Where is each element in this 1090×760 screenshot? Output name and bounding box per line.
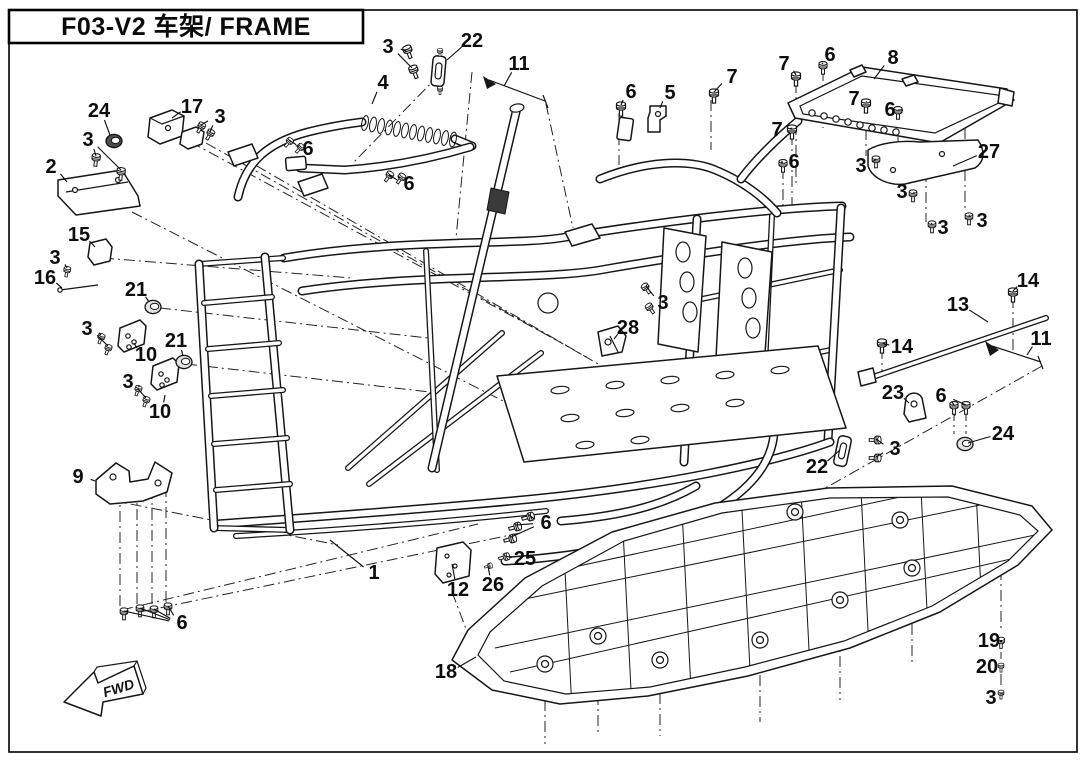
- callout-label: 10: [135, 344, 157, 366]
- callout-label: 19: [978, 630, 1000, 652]
- callout-label: 2: [45, 156, 56, 178]
- skid-plate: [452, 470, 1052, 710]
- callout-label: 7: [848, 88, 859, 110]
- callout-label: 3: [214, 106, 225, 128]
- callout-label: 28: [617, 317, 639, 339]
- callout-label: 3: [81, 318, 92, 340]
- diagram-title: F03-V2 车架/ FRAME: [61, 12, 311, 41]
- callout-label: 6: [625, 81, 636, 103]
- callout-label: 7: [778, 53, 789, 75]
- bolt-icon: [120, 608, 128, 620]
- part-23-bracket: [904, 393, 926, 422]
- callout-label: 6: [176, 612, 187, 634]
- bushing-icon: [106, 134, 122, 147]
- callout-label: 3: [855, 155, 866, 177]
- leader-line: [790, 128, 792, 129]
- part-2-plate: [58, 170, 140, 215]
- callout-label: 15: [68, 224, 90, 246]
- callout-label: 11: [1030, 328, 1051, 350]
- callout-label: 9: [72, 466, 83, 488]
- callout-label: 14: [891, 336, 914, 358]
- leader-line: [56, 283, 62, 288]
- leader-line: [822, 63, 823, 64]
- bolt-icon: [787, 125, 796, 139]
- rear-rack: [788, 65, 1014, 143]
- leader-line: [866, 101, 867, 102]
- leader-line: [91, 479, 95, 481]
- callout-label: 3: [49, 247, 60, 269]
- leader-line: [372, 92, 377, 104]
- bolt-icon: [508, 522, 522, 533]
- callout-label: 6: [935, 385, 946, 407]
- callout-label: 3: [985, 687, 996, 709]
- callout-label: 27: [978, 141, 1000, 163]
- part-16-rod: [60, 285, 98, 290]
- callout-label: 6: [302, 138, 313, 160]
- callout-label: 26: [482, 574, 504, 596]
- leader-line: [931, 223, 932, 224]
- bushing-icon: [176, 355, 192, 368]
- leader-line: [124, 611, 169, 621]
- title-box: F03-V2 车架/ FRAME: [9, 10, 363, 43]
- bushing-icon: [957, 437, 973, 450]
- leader-line: [104, 120, 110, 135]
- callout-label: 21: [165, 330, 187, 352]
- callout-label: 3: [976, 210, 987, 232]
- callout-label: 22: [806, 456, 828, 478]
- leader-line: [98, 147, 121, 170]
- diagram-page: FWD 241733215316213102131096132211466657…: [0, 0, 1090, 760]
- leader-line: [399, 177, 400, 178]
- callout-label: 3: [122, 371, 133, 393]
- bolt-icon: [133, 385, 143, 397]
- callout-label: 6: [824, 44, 835, 66]
- flex-section: [360, 115, 457, 147]
- callout-label: 3: [889, 438, 900, 460]
- callout-label: 25: [514, 548, 536, 570]
- callout-label: 13: [947, 294, 969, 316]
- callout-label: 3: [937, 217, 948, 239]
- callout-label: 6: [788, 151, 799, 173]
- leader-line: [138, 386, 140, 387]
- fwd-arrow: FWD: [64, 661, 146, 716]
- callout-label: 14: [1017, 270, 1040, 292]
- leader-line: [330, 540, 364, 567]
- bolt-icon: [950, 402, 958, 415]
- callout-label: 11: [508, 53, 529, 75]
- bolt-icon: [877, 339, 886, 353]
- callout-label: 24: [992, 423, 1015, 445]
- leader-line: [447, 47, 462, 60]
- bolt-icon: [869, 436, 881, 444]
- callout-label: 3: [896, 181, 907, 203]
- callout-label: 18: [435, 661, 457, 683]
- bolt-icon: [965, 213, 973, 225]
- callout-label: 3: [657, 292, 668, 314]
- frame-diagram: FWD 241733215316213102131096132211466657…: [0, 0, 1090, 760]
- part-12-bracket: [435, 542, 471, 583]
- part-5-bracket: [648, 106, 666, 132]
- callout-label: 6: [540, 512, 551, 534]
- callout-label: 8: [887, 47, 898, 69]
- callout-label: 4: [377, 72, 389, 94]
- callout-label: 12: [447, 579, 469, 601]
- bolt-icon: [998, 663, 1004, 672]
- bolt-icon: [928, 221, 936, 233]
- callout-label: 24: [88, 100, 111, 122]
- callout-label: 21: [125, 279, 147, 301]
- callout-label: 20: [976, 656, 998, 678]
- callout-label: 16: [34, 267, 56, 289]
- callout-label: 23: [882, 382, 904, 404]
- callout-label: 3: [382, 36, 393, 58]
- bolt-icon: [437, 86, 442, 94]
- bolt-icon: [164, 603, 172, 615]
- callout-label: 6: [884, 99, 895, 121]
- callout-label: 17: [181, 96, 203, 118]
- leader-line: [969, 310, 988, 322]
- bushing-icon: [145, 300, 161, 313]
- bolt-icon: [909, 190, 917, 202]
- callout-label: 1: [368, 562, 379, 584]
- bolt-icon: [204, 128, 216, 141]
- bolt-icon: [998, 690, 1004, 699]
- bolt-icon: [402, 44, 415, 60]
- bolt-icon: [640, 282, 652, 295]
- bolt-icon: [644, 302, 656, 315]
- callout-label: 7: [771, 119, 782, 141]
- callout-label: 6: [403, 173, 414, 195]
- bolt-icon: [382, 170, 394, 183]
- callout-label: 22: [461, 30, 483, 52]
- callout-label: 3: [82, 129, 93, 151]
- callout-label: 10: [149, 401, 171, 423]
- callout-label: 5: [664, 82, 675, 104]
- callout-label: 7: [726, 66, 737, 88]
